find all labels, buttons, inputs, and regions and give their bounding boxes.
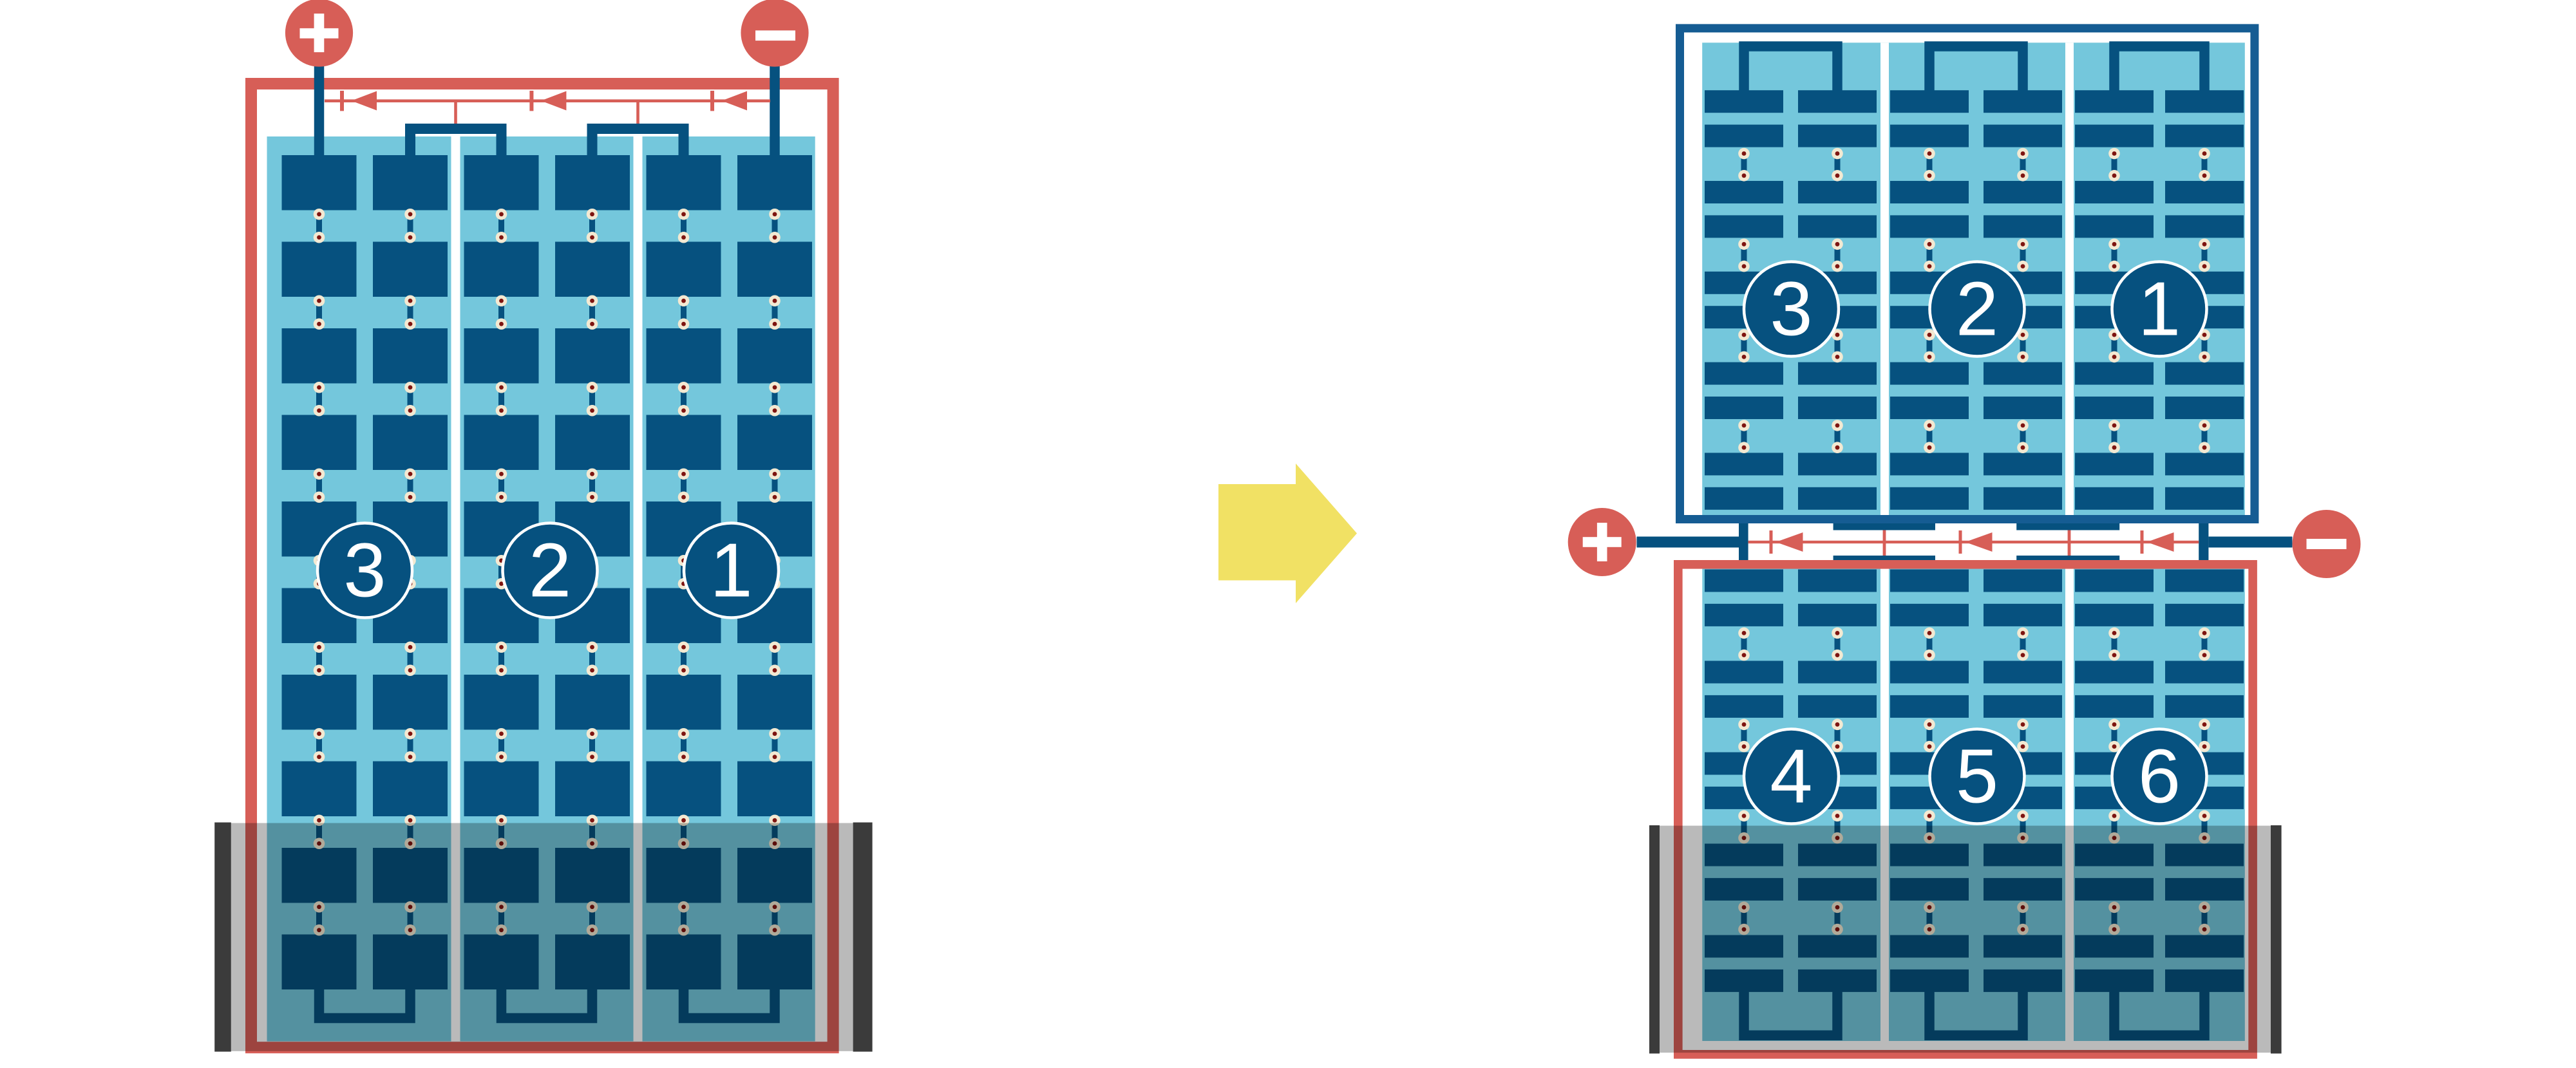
svg-text:1: 1 (2138, 267, 2181, 352)
svg-text:3: 3 (1770, 267, 1812, 352)
svg-text:2: 2 (1956, 267, 1998, 352)
svg-text:2: 2 (529, 528, 571, 614)
svg-text:6: 6 (2138, 734, 2181, 820)
svg-text:1: 1 (710, 528, 752, 614)
svg-text:4: 4 (1770, 734, 1812, 820)
svg-text:3: 3 (343, 528, 386, 614)
svg-text:5: 5 (1956, 734, 1998, 820)
